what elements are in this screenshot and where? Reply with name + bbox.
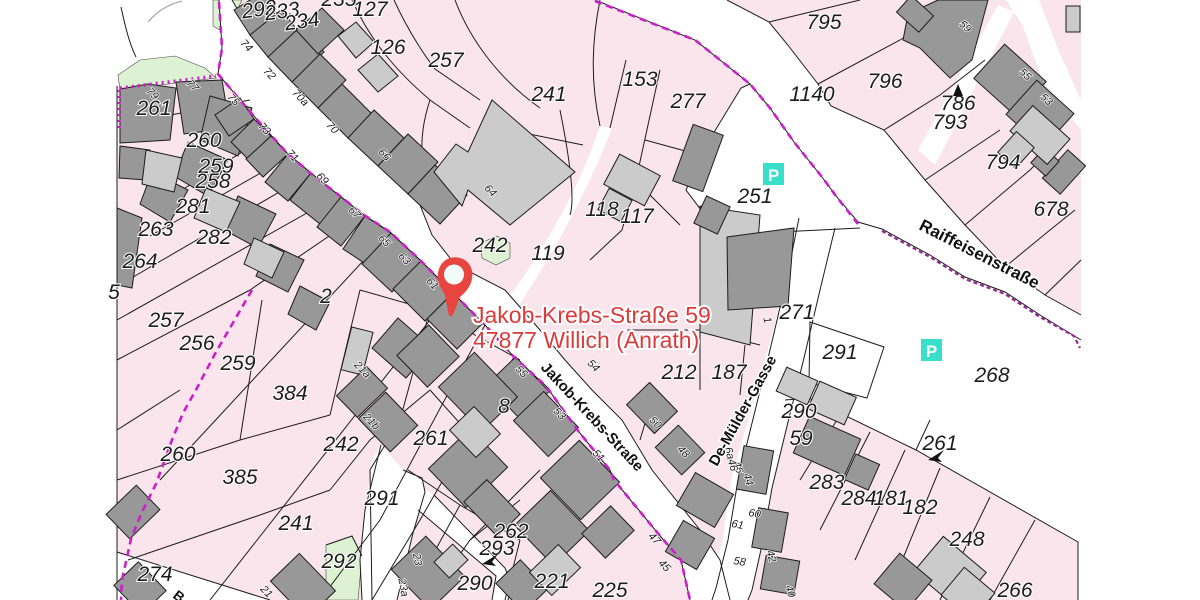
svg-text:248: 248 — [948, 528, 984, 551]
svg-text:284: 284 — [840, 487, 876, 510]
svg-text:274: 274 — [136, 563, 172, 586]
svg-text:8: 8 — [498, 395, 510, 418]
svg-text:257: 257 — [147, 309, 184, 332]
svg-text:212: 212 — [660, 361, 696, 384]
svg-text:126: 126 — [370, 36, 405, 59]
svg-text:182: 182 — [902, 496, 937, 519]
svg-text:251: 251 — [736, 185, 772, 208]
svg-text:261: 261 — [412, 427, 448, 450]
svg-text:291: 291 — [821, 341, 857, 364]
svg-text:258: 258 — [194, 170, 230, 193]
svg-text:260: 260 — [185, 129, 221, 152]
svg-text:678: 678 — [1033, 198, 1068, 221]
svg-text:5: 5 — [108, 281, 120, 304]
svg-text:261: 261 — [921, 432, 957, 455]
svg-text:795: 795 — [806, 11, 841, 34]
svg-text:117: 117 — [620, 205, 655, 228]
svg-text:794: 794 — [985, 151, 1020, 174]
svg-text:259: 259 — [219, 352, 255, 375]
svg-text:291: 291 — [363, 487, 399, 510]
svg-text:263: 263 — [137, 218, 173, 241]
svg-text:290: 290 — [456, 572, 492, 595]
svg-text:Jakob-Krebs-Straße 59: Jakob-Krebs-Straße 59 — [473, 302, 711, 328]
svg-text:P: P — [768, 166, 779, 185]
svg-text:256: 256 — [178, 332, 214, 355]
svg-text:119: 119 — [531, 242, 565, 265]
svg-text:384: 384 — [272, 382, 307, 405]
svg-text:264: 264 — [121, 250, 157, 273]
svg-text:242: 242 — [322, 433, 358, 456]
svg-text:277: 277 — [669, 90, 706, 113]
svg-text:271: 271 — [778, 301, 814, 324]
svg-text:262: 262 — [492, 520, 528, 543]
svg-text:47877 Willich (Anrath): 47877 Willich (Anrath) — [473, 327, 699, 353]
svg-text:283: 283 — [808, 471, 844, 494]
svg-text:59: 59 — [789, 427, 813, 450]
svg-text:242: 242 — [471, 234, 507, 257]
svg-text:257: 257 — [427, 49, 464, 72]
svg-text:1140: 1140 — [789, 83, 834, 106]
svg-text:282: 282 — [195, 226, 231, 249]
svg-text:385: 385 — [222, 466, 257, 489]
svg-text:266: 266 — [996, 579, 1032, 600]
svg-text:P: P — [926, 342, 937, 361]
svg-text:281: 281 — [174, 195, 210, 218]
svg-text:153: 153 — [622, 68, 657, 91]
svg-text:290: 290 — [780, 400, 816, 423]
svg-text:796: 796 — [867, 70, 902, 93]
svg-text:260: 260 — [159, 443, 195, 466]
svg-text:241: 241 — [530, 83, 566, 106]
svg-text:118: 118 — [585, 198, 619, 221]
svg-text:793: 793 — [932, 111, 967, 134]
svg-text:221: 221 — [533, 570, 569, 593]
svg-text:268: 268 — [973, 364, 1009, 387]
svg-text:225: 225 — [591, 579, 627, 600]
svg-text:241: 241 — [277, 512, 313, 535]
svg-text:2: 2 — [319, 285, 332, 308]
svg-text:187: 187 — [711, 361, 747, 384]
svg-text:61: 61 — [730, 518, 744, 532]
svg-text:292: 292 — [320, 550, 356, 573]
svg-text:235: 235 — [320, 0, 356, 11]
svg-text:127: 127 — [352, 0, 388, 21]
